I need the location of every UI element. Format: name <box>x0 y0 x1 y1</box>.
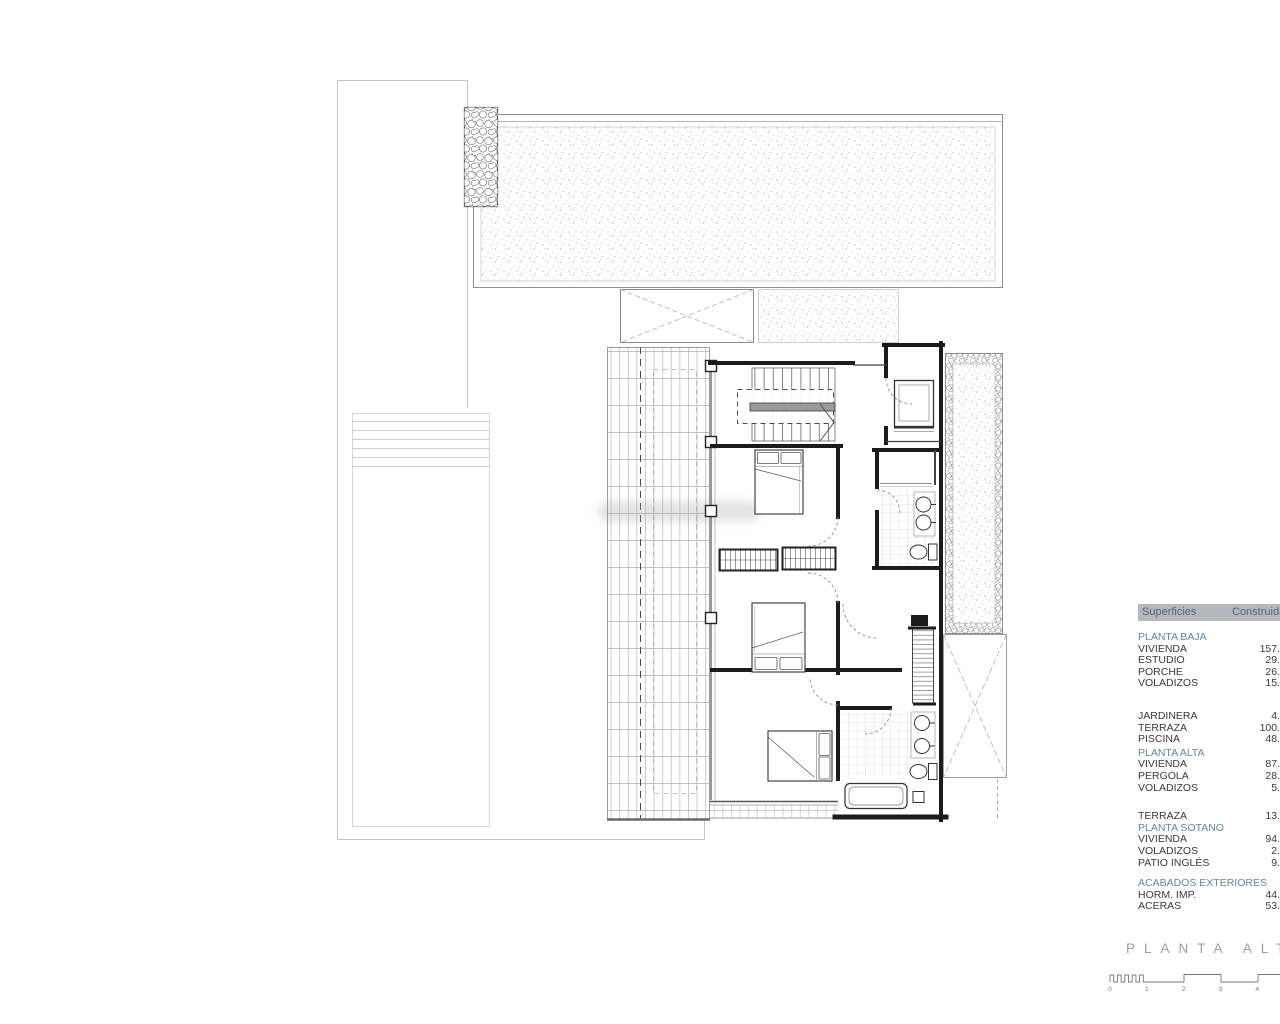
bathroom-2 <box>841 711 937 809</box>
planter <box>946 354 1003 634</box>
section-header: ACABADOS EXTERIORES <box>1138 878 1280 890</box>
surface-section-acabados: ACABADOS EXTERIORESHORM. IMP.44.ACERAS53… <box>1138 878 1280 913</box>
toilet-icon <box>910 765 927 779</box>
surface-value: 28. <box>1138 771 1280 783</box>
surface-section-terraza-alta: TERRAZA13. <box>1138 811 1280 823</box>
linen-shelf <box>908 615 936 704</box>
surface-section-exterior-baja: JARDINERA4.TERRAZA100.PISCINA48. <box>1138 711 1280 746</box>
surface-value: 4. <box>1138 711 1280 723</box>
sink-icon <box>916 515 931 530</box>
sink-icon <box>915 739 930 754</box>
sink-icon <box>915 716 930 731</box>
scale-tick: 0 <box>1108 986 1112 993</box>
surface-value: 5. <box>1138 783 1280 795</box>
surface-section-planta-sotano: PLANTA SOTANOVIVIENDA94.VOLADIZOS2.PATIO… <box>1138 823 1280 869</box>
surface-row: VOLADIZOS15. <box>1138 678 1280 690</box>
surface-value: 53. <box>1138 901 1280 913</box>
scale-tick: 3 <box>1219 986 1223 993</box>
staircase <box>738 368 836 441</box>
plan-title-label: PLANTA ALTA <box>1126 941 1280 956</box>
section-header: PLANTA BAJA <box>1138 632 1280 644</box>
surface-value: 2. <box>1138 846 1280 858</box>
surface-row: TERRAZA13. <box>1138 811 1280 823</box>
gravel-strip <box>759 290 899 343</box>
sink-icon <box>916 497 931 512</box>
scale-bar: 01234 <box>1108 975 1280 994</box>
floorplan-canvas: 01234 Superficies Construida PLANTA BAJA… <box>0 0 1280 1024</box>
surface-row: PISCINA48. <box>1138 734 1280 746</box>
surface-value: 48. <box>1138 734 1280 746</box>
watermark <box>598 501 760 522</box>
surface-row: ACERAS53. <box>1138 901 1280 913</box>
bed-3 <box>768 731 832 781</box>
scale-tick: 4 <box>1255 986 1259 993</box>
bathroom-1 <box>879 484 937 567</box>
surfaces-table: Superficies Construida PLANTA BAJAVIVIEN… <box>1138 604 1280 913</box>
floor-plan-drawing: 01234 <box>0 0 1280 1024</box>
surface-row: JARDINERA4. <box>1138 711 1280 723</box>
surface-row: PATIO INGLÉS9. <box>1138 858 1280 870</box>
surface-value: 9. <box>1138 858 1280 870</box>
closets <box>719 548 836 571</box>
bed-master <box>755 450 803 514</box>
pergola-beam <box>621 290 754 343</box>
toilet-icon <box>910 545 927 559</box>
surface-value: 13. <box>1138 811 1280 823</box>
column-header-surfaces: Superficies <box>1138 606 1196 618</box>
surface-section-planta-baja: PLANTA BAJAVIVIENDA157.ESTUDIO29.PORCHE2… <box>1138 632 1280 690</box>
surface-row: VOLADIZOS2. <box>1138 846 1280 858</box>
column-header-built: Construida <box>1232 604 1280 621</box>
surfaces-table-header: Superficies Construida <box>1138 604 1280 621</box>
upper-terrace <box>465 108 1003 288</box>
scale-tick: 2 <box>1182 986 1186 993</box>
pool-outline <box>353 414 490 827</box>
scale-tick: 1 <box>1145 986 1149 993</box>
bed-2 <box>752 603 805 672</box>
surface-row: PERGOLA28. <box>1138 771 1280 783</box>
utility-fixture <box>894 381 934 432</box>
surface-section-planta-alta: PLANTA ALTAVIVIENDA87.PERGOLA28.VOLADIZO… <box>1138 748 1280 794</box>
skylight-x <box>944 635 1007 819</box>
surface-value: 15. <box>1138 678 1280 690</box>
surface-row: VOLADIZOS5. <box>1138 783 1280 795</box>
surfaces-table-body: PLANTA BAJAVIVIENDA157.ESTUDIO29.PORCHE2… <box>1138 632 1280 913</box>
